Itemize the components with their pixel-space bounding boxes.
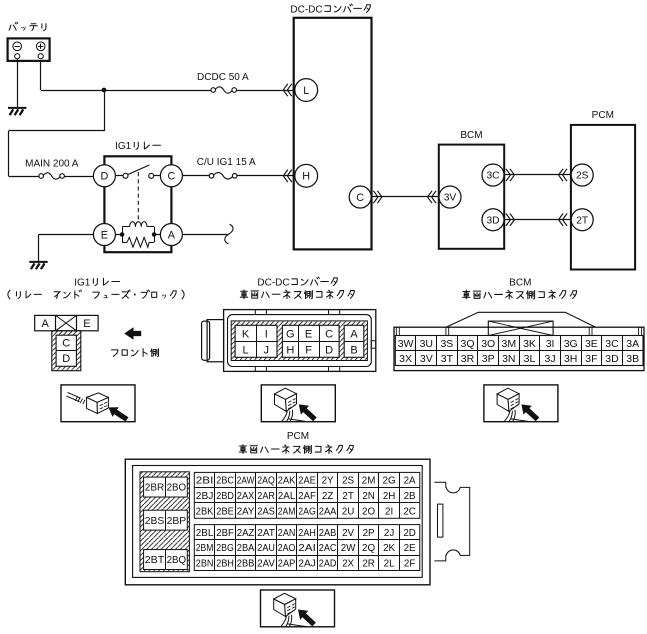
svg-text:K: K — [242, 328, 250, 340]
svg-text:2R: 2R — [362, 559, 375, 570]
svg-text:C/U IG1 15 A: C/U IG1 15 A — [197, 157, 256, 168]
svg-text:A: A — [168, 229, 176, 241]
svg-text:L: L — [303, 85, 309, 97]
svg-text:2P: 2P — [363, 528, 375, 539]
svg-text:2AS: 2AS — [257, 506, 275, 517]
svg-text:DC-DC: DC-DC — [257, 277, 289, 288]
svg-text:2AT: 2AT — [257, 528, 275, 539]
svg-text:2BD: 2BD — [216, 491, 234, 502]
svg-text:2AB: 2AB — [319, 528, 337, 539]
svg-text:PCM: PCM — [287, 431, 309, 442]
svg-text:2D: 2D — [403, 528, 416, 539]
svg-text:2Y: 2Y — [322, 476, 334, 487]
svg-text:2AP: 2AP — [278, 559, 296, 570]
svg-text:2AK: 2AK — [278, 476, 296, 487]
svg-text:2AC: 2AC — [319, 543, 337, 554]
svg-text:2BN: 2BN — [196, 559, 214, 570]
svg-text:2AZ: 2AZ — [237, 528, 255, 539]
svg-text:3N: 3N — [502, 353, 515, 365]
svg-text:3Q: 3Q — [460, 338, 474, 350]
svg-text:3X: 3X — [399, 353, 412, 365]
svg-text:H: H — [302, 171, 310, 183]
svg-text:MAIN 200 A: MAIN 200 A — [25, 159, 79, 170]
svg-text:3V: 3V — [420, 353, 433, 365]
svg-text:2BG: 2BG — [216, 543, 234, 554]
svg-text:3L: 3L — [524, 353, 536, 365]
svg-text:2W: 2W — [341, 543, 356, 554]
svg-text:2AG: 2AG — [298, 506, 316, 517]
svg-text:3W: 3W — [398, 338, 414, 350]
svg-text:2Q: 2Q — [362, 543, 375, 554]
svg-text:C: C — [356, 192, 364, 204]
svg-text:2AD: 2AD — [319, 559, 337, 570]
svg-text:2BI: 2BI — [196, 476, 214, 487]
svg-text:3G: 3G — [564, 338, 578, 350]
svg-text:2AW: 2AW — [237, 476, 255, 487]
svg-text:2AJ: 2AJ — [298, 559, 316, 570]
svg-text:3O: 3O — [481, 338, 495, 350]
svg-text:2L: 2L — [384, 559, 395, 570]
svg-text:2M: 2M — [362, 476, 376, 487]
svg-text:2T: 2T — [576, 215, 588, 226]
svg-text:H: H — [286, 344, 294, 356]
svg-text:3M: 3M — [502, 338, 517, 350]
svg-text:2BM: 2BM — [196, 543, 214, 554]
svg-text:3T: 3T — [441, 353, 454, 365]
svg-text:3I: 3I — [546, 338, 555, 350]
svg-text:C: C — [167, 171, 175, 183]
svg-text:2BJ: 2BJ — [196, 491, 214, 502]
svg-text:2AO: 2AO — [278, 543, 296, 554]
svg-text:2BA: 2BA — [237, 543, 255, 554]
svg-text:3R: 3R — [461, 353, 475, 365]
svg-text:2BE: 2BE — [216, 506, 234, 517]
svg-text:2V: 2V — [342, 528, 354, 539]
svg-text:C: C — [62, 338, 70, 350]
svg-text:J: J — [264, 344, 270, 356]
svg-text:3U: 3U — [420, 338, 433, 350]
svg-text:D: D — [100, 171, 108, 183]
svg-text:3C: 3C — [605, 338, 619, 350]
svg-text:2O: 2O — [362, 506, 375, 517]
svg-text:IG1: IG1 — [115, 141, 132, 152]
svg-text:2BF: 2BF — [216, 528, 234, 539]
svg-text:2AE: 2AE — [298, 476, 316, 487]
svg-text:E: E — [305, 328, 312, 340]
svg-text:3D: 3D — [486, 215, 499, 226]
svg-text:2BK: 2BK — [196, 506, 214, 517]
svg-text:2AV: 2AV — [257, 559, 275, 570]
svg-text:2S: 2S — [342, 476, 354, 487]
svg-text:2AF: 2AF — [298, 491, 316, 502]
svg-text:2H: 2H — [383, 491, 396, 502]
svg-text:2AR: 2AR — [257, 491, 275, 502]
svg-text:3F: 3F — [585, 353, 597, 365]
svg-text:2U: 2U — [342, 506, 355, 517]
svg-text:2AL: 2AL — [278, 491, 296, 502]
svg-text:3V: 3V — [444, 193, 457, 204]
svg-text:2S: 2S — [576, 171, 589, 182]
svg-text:2AH: 2AH — [298, 528, 316, 539]
svg-text:3S: 3S — [440, 338, 453, 350]
svg-text:2G: 2G — [383, 476, 396, 487]
svg-text:2A: 2A — [404, 476, 416, 487]
svg-text:3J: 3J — [545, 353, 556, 365]
svg-text:C: C — [325, 328, 333, 340]
svg-text:2AI: 2AI — [298, 543, 316, 554]
svg-text:2K: 2K — [383, 543, 395, 554]
svg-text:2X: 2X — [342, 559, 354, 570]
svg-text:2I: 2I — [385, 506, 393, 517]
svg-text:2AU: 2AU — [257, 543, 275, 554]
svg-text:2BS: 2BS — [145, 516, 165, 527]
svg-text:DCDC 50 A: DCDC 50 A — [197, 72, 249, 83]
svg-text:3E: 3E — [585, 338, 598, 350]
svg-text:IG1: IG1 — [74, 277, 91, 288]
svg-text:3A: 3A — [626, 338, 639, 350]
svg-text:2AY: 2AY — [237, 506, 255, 517]
svg-text:2BP: 2BP — [167, 516, 187, 527]
svg-text:3C: 3C — [486, 171, 499, 182]
svg-text:2B: 2B — [404, 491, 416, 502]
svg-text:2BH: 2BH — [216, 559, 234, 570]
svg-text:2BL: 2BL — [196, 528, 214, 539]
svg-text:2N: 2N — [362, 491, 375, 502]
svg-text:A: A — [42, 318, 50, 330]
svg-text:L: L — [243, 344, 249, 356]
svg-text:I: I — [265, 328, 268, 340]
svg-text:BCM: BCM — [460, 130, 482, 141]
svg-text:2AX: 2AX — [237, 491, 255, 502]
svg-text:PCM: PCM — [592, 110, 614, 121]
svg-text:2BR: 2BR — [145, 483, 165, 494]
svg-text:2Z: 2Z — [322, 491, 333, 502]
svg-text:2BT: 2BT — [145, 555, 165, 566]
svg-text:2C: 2C — [403, 506, 416, 517]
svg-text:3H: 3H — [564, 353, 577, 365]
svg-text:2AM: 2AM — [278, 506, 296, 517]
svg-text:2F: 2F — [404, 559, 415, 570]
svg-text:E: E — [83, 318, 90, 330]
svg-text:DC-DC: DC-DC — [290, 4, 322, 15]
svg-text:A: A — [350, 328, 358, 340]
svg-text:3P: 3P — [482, 353, 495, 365]
svg-text:B: B — [350, 344, 357, 356]
svg-text:3D: 3D — [605, 353, 619, 365]
svg-text:D: D — [62, 353, 70, 365]
svg-text:2AA: 2AA — [319, 506, 337, 517]
svg-text:2J: 2J — [384, 528, 394, 539]
svg-text:G: G — [286, 328, 295, 340]
svg-text:2AN: 2AN — [278, 528, 296, 539]
svg-text:2BO: 2BO — [167, 483, 187, 494]
svg-text:2BC: 2BC — [216, 476, 234, 487]
svg-text:2BB: 2BB — [237, 559, 255, 570]
svg-text:D: D — [325, 344, 333, 356]
svg-text:2BQ: 2BQ — [167, 555, 187, 566]
svg-text:3B: 3B — [626, 353, 639, 365]
svg-text:BCM: BCM — [509, 277, 531, 288]
svg-text:3K: 3K — [523, 338, 536, 350]
svg-text:2E: 2E — [404, 543, 416, 554]
svg-text:2T: 2T — [342, 491, 353, 502]
svg-text:E: E — [101, 229, 108, 241]
svg-text:F: F — [305, 344, 312, 356]
svg-text:2AQ: 2AQ — [257, 476, 275, 487]
